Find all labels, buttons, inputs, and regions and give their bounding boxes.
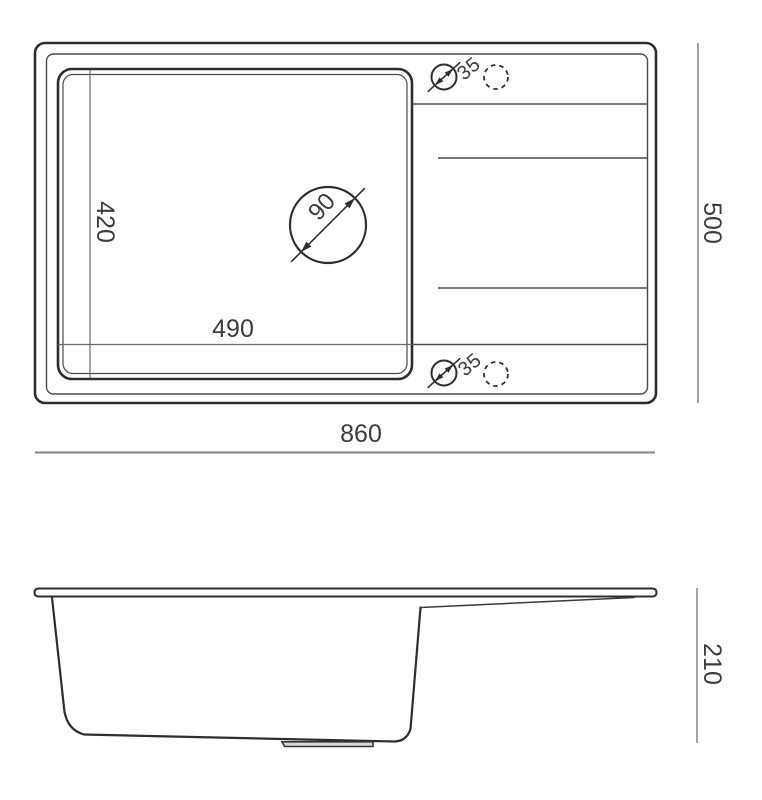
tap-hole-top-dimension: 35: [428, 53, 508, 92]
side-view: [35, 589, 657, 747]
bowl-depth-label: 420: [91, 201, 119, 243]
tap-hole-top-alternate: [484, 65, 508, 89]
overall-depth-dimension: 500: [698, 43, 726, 403]
tap-hole-top-label: 35: [453, 53, 485, 85]
overall-depth-label: 500: [698, 202, 726, 244]
side-drainer-underside: [421, 598, 635, 608]
side-bowl-profile: [52, 598, 421, 742]
sink-technical-drawing-page: 420 490 90 35 35: [0, 0, 762, 800]
tap-hole-bottom-alternate: [484, 362, 508, 386]
side-waste-outlet: [282, 742, 373, 747]
tap-hole-bottom-dimension: 35: [428, 349, 508, 388]
sink-inner-edge: [47, 54, 648, 394]
overall-width-dimension: 860: [35, 420, 655, 453]
top-view: 420 490 90 35 35: [35, 43, 656, 403]
drain-diameter-label: 90: [303, 188, 341, 226]
height-label: 210: [698, 643, 726, 685]
tap-hole-bottom-label: 35: [454, 349, 486, 381]
drain-hole-dimension: 90: [290, 187, 366, 263]
bowl-width-label: 490: [212, 315, 254, 343]
sink-technical-drawing: 420 490 90 35 35: [0, 0, 762, 800]
overall-width-label: 860: [340, 420, 382, 448]
side-rim-outline: [35, 589, 657, 597]
height-dimension: 210: [697, 588, 726, 743]
sink-outer-edge: [35, 43, 656, 403]
